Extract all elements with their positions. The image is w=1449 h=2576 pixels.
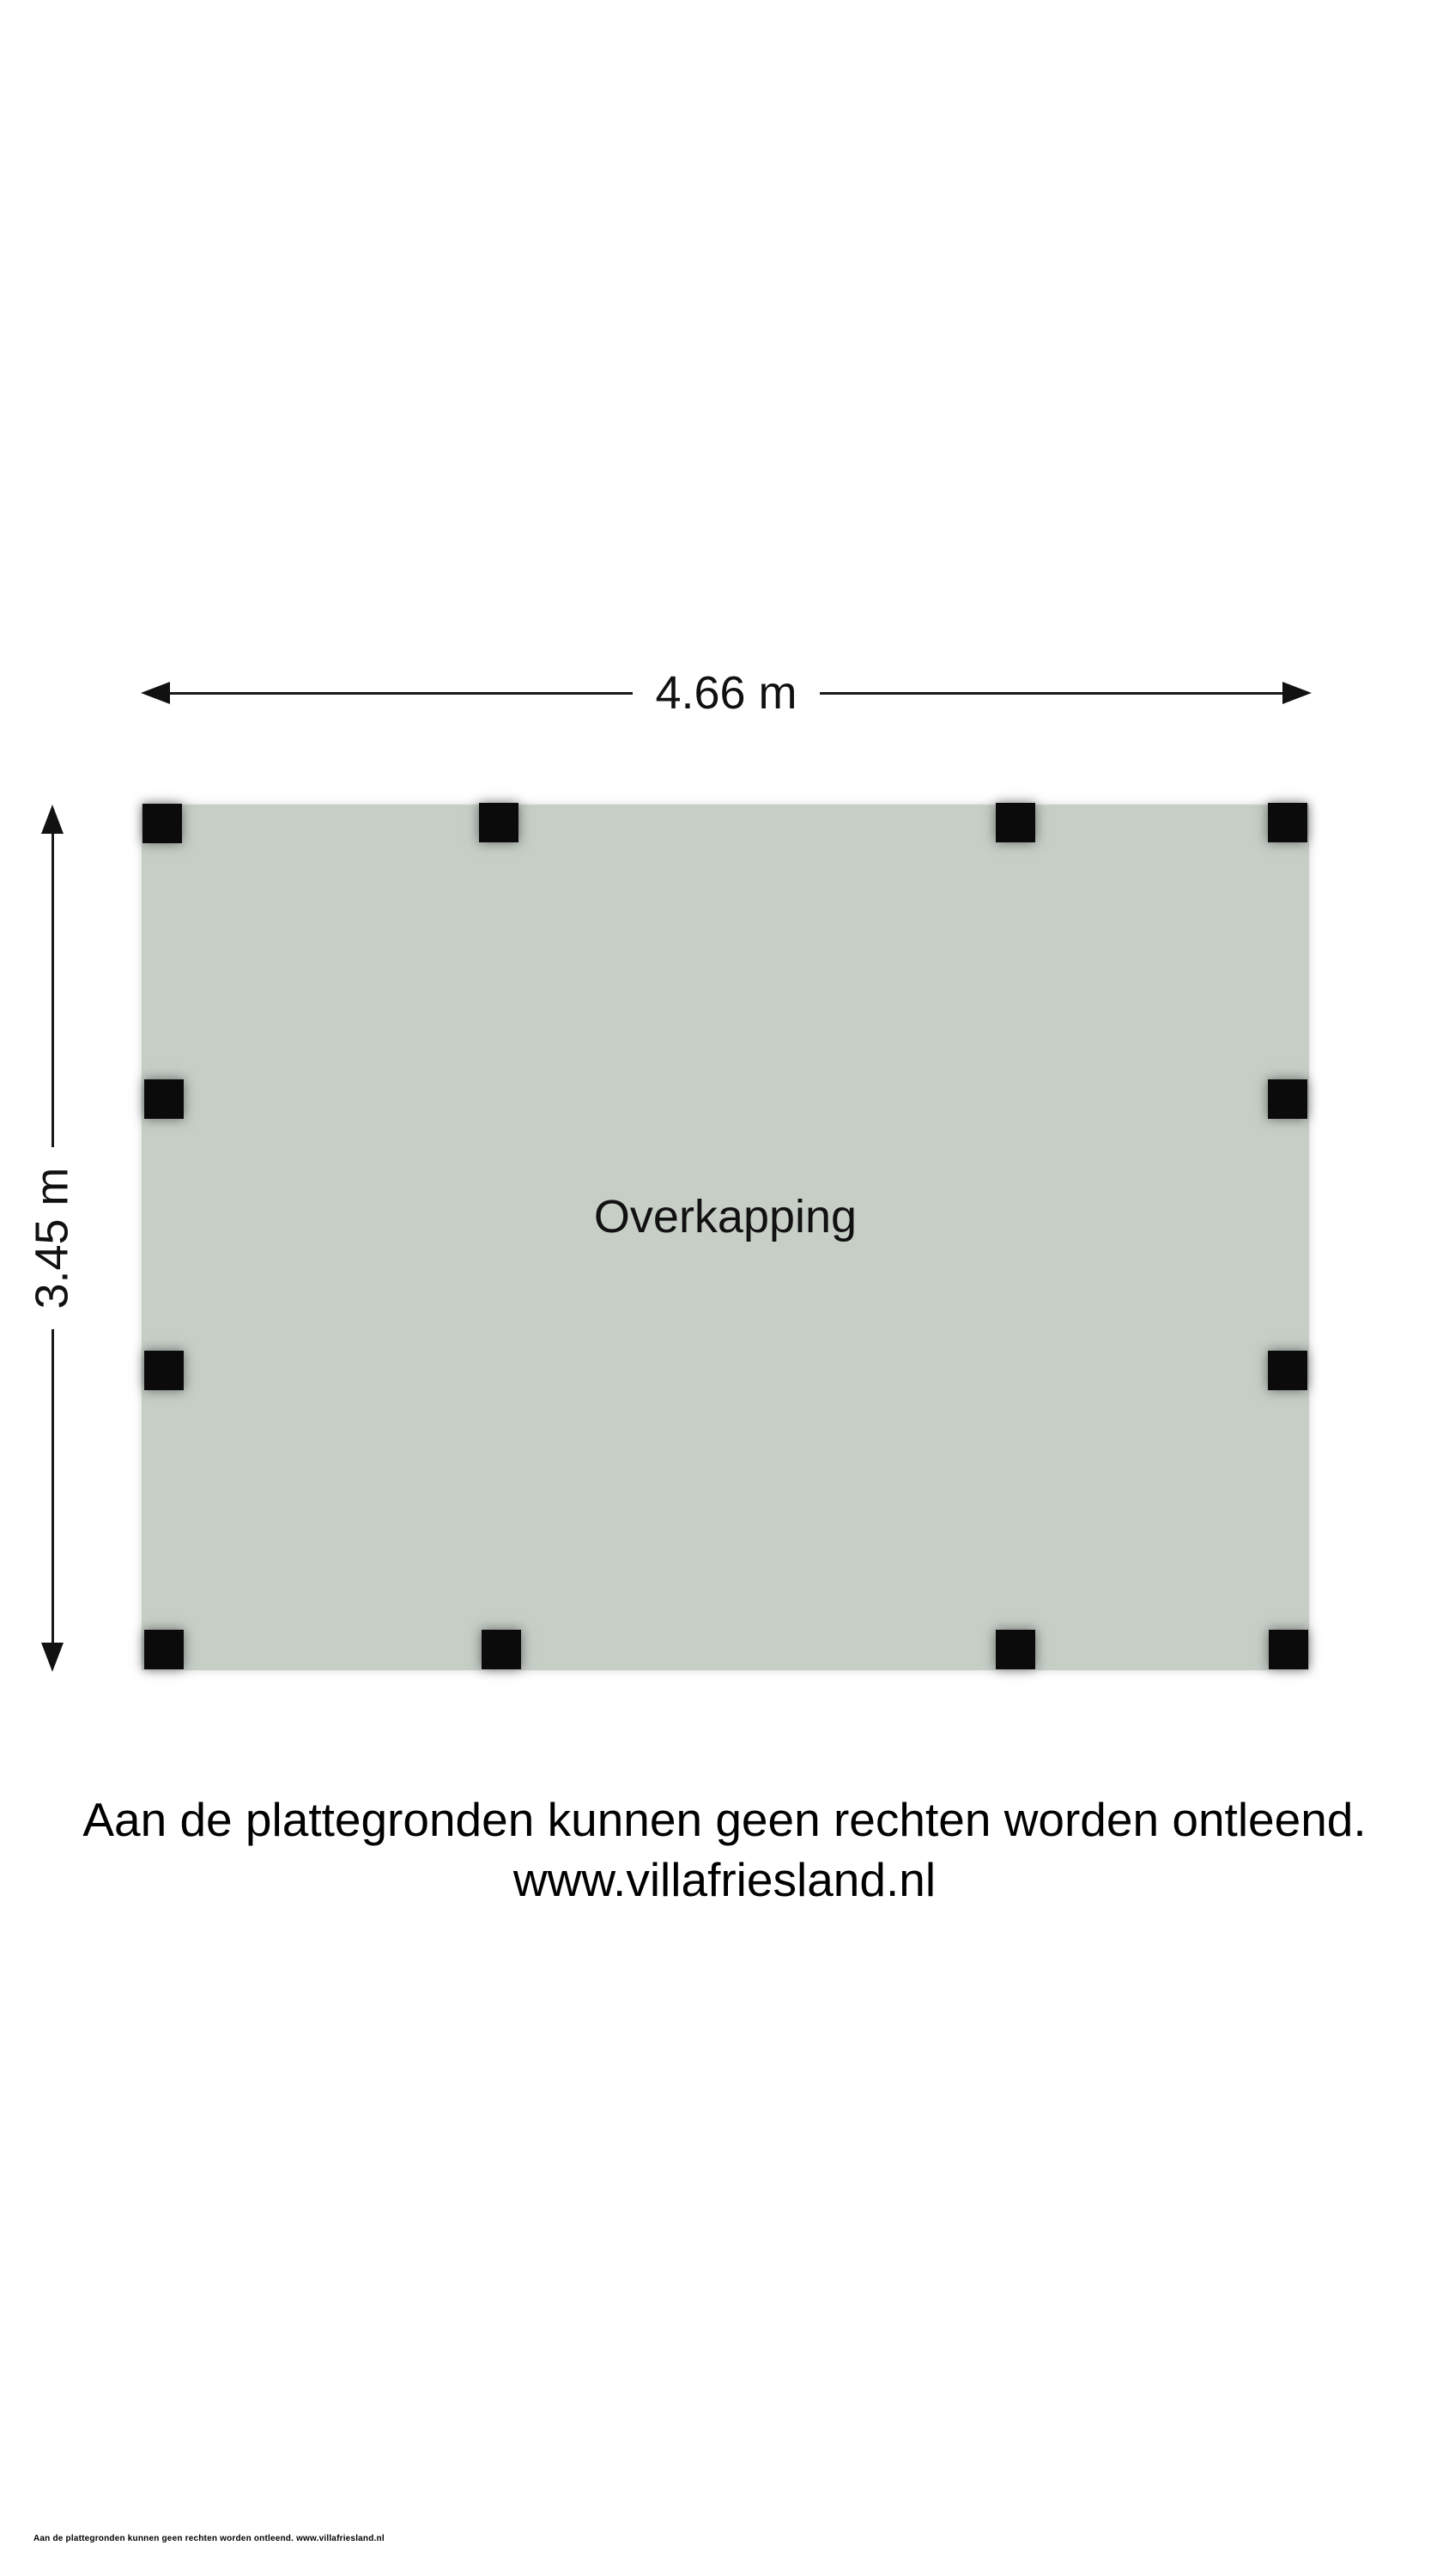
room-label: Overkapping [142, 1192, 1309, 1242]
arrow-down-icon [41, 1643, 64, 1672]
post-top-mid-2 [996, 803, 1035, 842]
height-dimension-label: 3.45 m [26, 1167, 79, 1309]
post-left-mid-2 [144, 1351, 184, 1390]
footer-fineprint: Aan de plattegronden kunnen geen rechten… [33, 2534, 385, 2543]
dimension-line [52, 1329, 54, 1643]
dimension-line [820, 692, 1282, 695]
post-right-mid-1 [1268, 1079, 1307, 1119]
height-dimension-label-wrap: 3.45 m [27, 1147, 77, 1329]
disclaimer-line-1: Aan de plattegronden kunnen geen rechten… [0, 1789, 1449, 1850]
dimension-line [170, 692, 633, 695]
post-left-mid-1 [144, 1079, 184, 1119]
post-top-left [142, 804, 182, 843]
width-dimension-label: 4.66 m [633, 666, 819, 720]
arrow-left-icon [141, 682, 170, 704]
arrow-up-icon [41, 805, 64, 834]
disclaimer: Aan de plattegronden kunnen geen rechten… [0, 1789, 1449, 1910]
post-bottom-mid-1 [482, 1630, 521, 1669]
post-right-mid-2 [1268, 1351, 1307, 1390]
dimension-line [52, 834, 54, 1147]
disclaimer-line-2: www.villafriesland.nl [0, 1850, 1449, 1910]
post-bottom-mid-2 [996, 1630, 1035, 1669]
width-dimension: 4.66 m [141, 667, 1312, 719]
post-bottom-left [144, 1630, 184, 1669]
post-bottom-right [1269, 1630, 1308, 1669]
post-top-mid-1 [479, 803, 518, 842]
arrow-right-icon [1282, 682, 1312, 704]
post-top-right [1268, 803, 1307, 842]
height-dimension: 3.45 m [27, 805, 77, 1672]
